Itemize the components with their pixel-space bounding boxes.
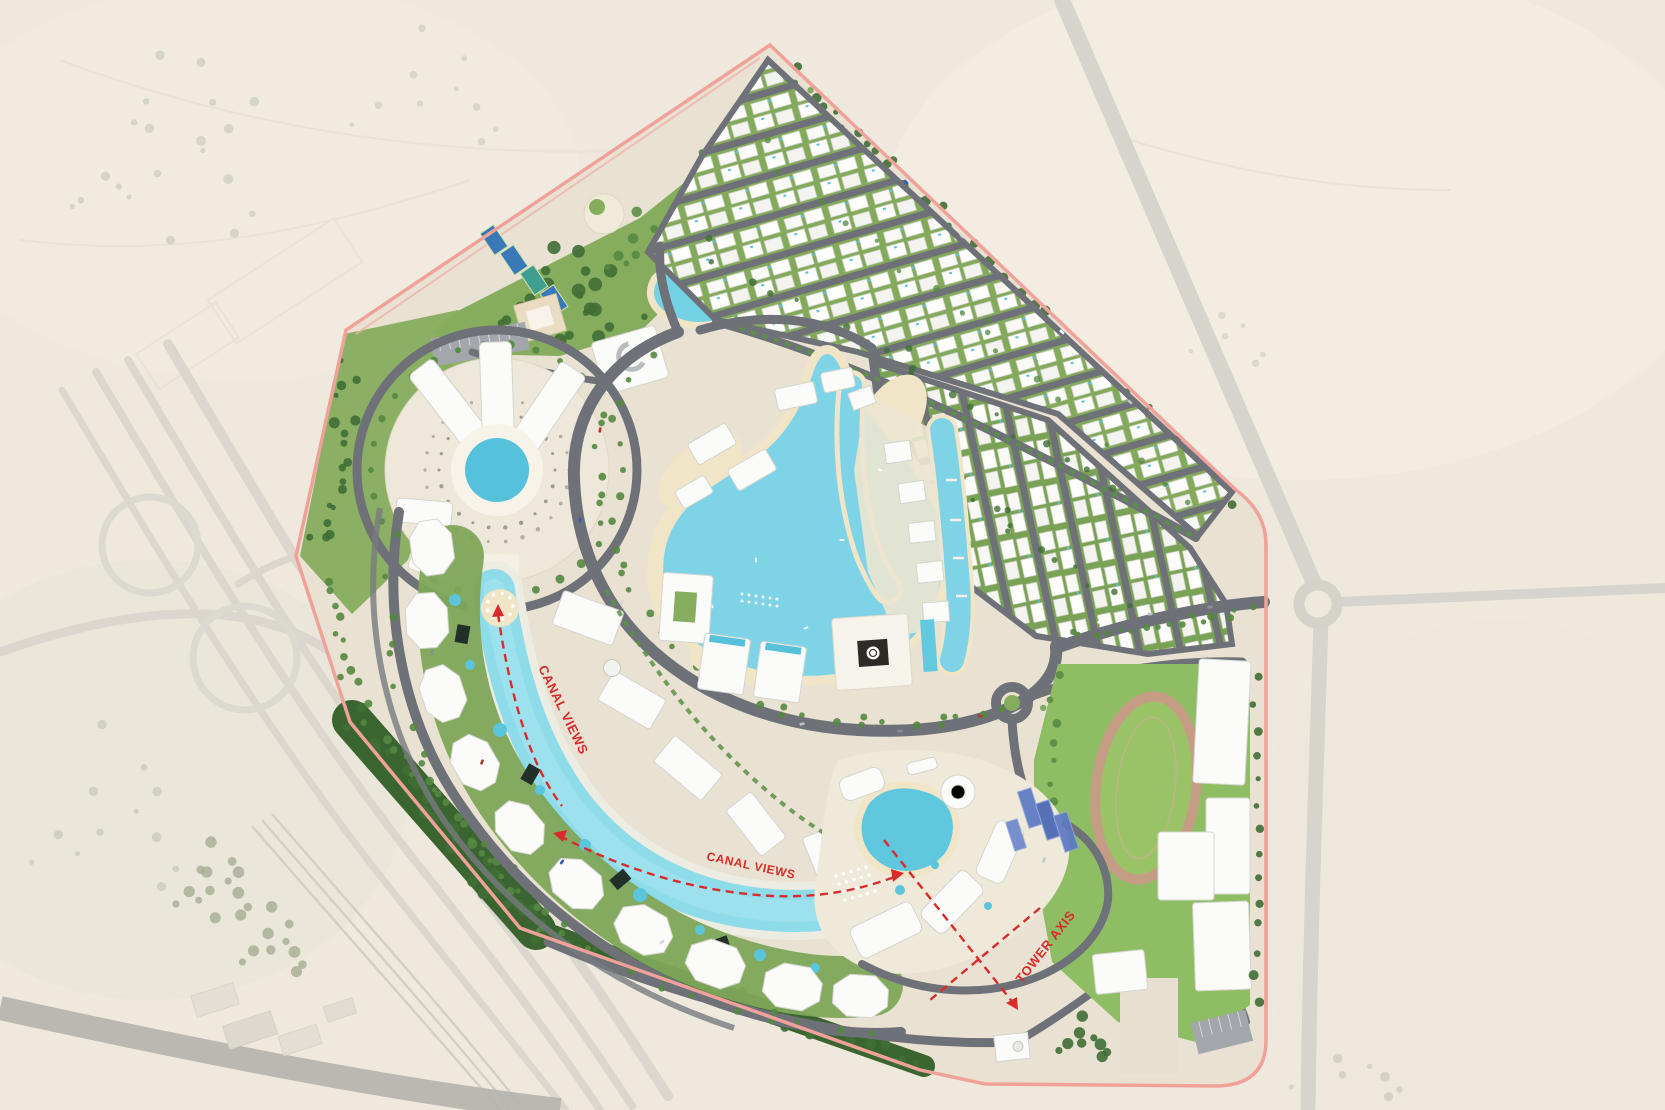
parasol-dot — [500, 617, 504, 621]
tree-dot — [426, 777, 434, 785]
tree-dot — [1050, 739, 1058, 747]
parasol-dot — [511, 604, 514, 607]
tree-dot — [481, 841, 488, 848]
tree-dot — [532, 586, 540, 594]
tree-dot — [938, 722, 945, 729]
tree-dot — [383, 735, 392, 744]
tree-dot — [1255, 673, 1263, 681]
tree-dot — [749, 278, 757, 286]
tree-dot — [306, 534, 313, 541]
parasol-dot — [508, 596, 512, 600]
tree-dot — [616, 492, 624, 500]
tree-dot — [547, 241, 560, 254]
tree-dot — [442, 799, 449, 806]
tree-dot — [323, 519, 331, 527]
tree-dot — [626, 587, 632, 593]
tree-dot — [336, 613, 344, 621]
tree-dot — [390, 613, 398, 621]
tree-dot — [502, 315, 512, 325]
tree-dot — [605, 322, 615, 332]
tree-dot — [1047, 782, 1053, 788]
tree-dot — [1166, 621, 1172, 627]
tree-dot — [1254, 803, 1260, 809]
car — [897, 730, 902, 733]
tree-dot — [708, 259, 714, 265]
parasol-dot — [858, 894, 862, 898]
lounger-dot — [755, 602, 758, 605]
tree-dot — [332, 603, 339, 610]
parasol-dot — [857, 868, 861, 872]
tree-dot — [1056, 671, 1064, 679]
parasol-dot — [834, 874, 838, 878]
tree-dot — [327, 503, 333, 509]
lounger-dot — [776, 598, 779, 601]
tree-dot — [572, 284, 586, 298]
parasol-dot — [873, 889, 877, 893]
tree-dot — [325, 530, 335, 540]
tree-dot — [613, 251, 623, 261]
tree-dot — [1190, 613, 1196, 619]
tree-dot — [1084, 466, 1090, 472]
lounger-dot — [755, 595, 758, 598]
tree-dot — [1047, 697, 1054, 704]
lounger-dot — [748, 601, 751, 604]
tree-dot — [592, 947, 597, 952]
crescent-plaza-green — [589, 199, 605, 215]
tree-dot — [460, 820, 468, 828]
tree-dot — [1144, 624, 1151, 631]
tree-dot — [1232, 609, 1236, 613]
tree-dot — [340, 653, 348, 661]
tree-dot — [1138, 457, 1145, 464]
parasol-dot — [855, 886, 859, 890]
plaza-dot — [471, 521, 474, 524]
tree-dot — [1185, 500, 1191, 506]
tree-dot — [688, 993, 694, 999]
tree-dot — [1062, 1038, 1073, 1049]
tree-dot — [626, 377, 632, 383]
plaza-dot — [565, 451, 568, 454]
tree-dot — [598, 492, 605, 499]
tree-dot — [1077, 1010, 1088, 1021]
tree-dot — [869, 1030, 876, 1037]
tree-dot — [1038, 546, 1045, 553]
plaza-dot — [457, 512, 461, 516]
plaza-dot — [423, 468, 426, 471]
plaza-dot — [536, 527, 540, 531]
tree-dot — [612, 546, 620, 554]
tree-dot — [598, 473, 606, 481]
plaza-dot — [447, 437, 450, 440]
tree-dot — [953, 714, 959, 720]
tree-dot — [370, 493, 377, 500]
tree-dot — [632, 251, 640, 259]
tree-dot — [588, 278, 602, 292]
tree-dot — [1254, 919, 1261, 926]
tree-dot — [623, 261, 629, 267]
tree-dot — [1255, 874, 1262, 881]
tree-dot — [632, 207, 642, 217]
plaza-dot — [549, 516, 552, 519]
tree-dot — [985, 317, 991, 323]
plaza-dot — [440, 452, 443, 455]
tree-dot — [1094, 632, 1101, 639]
tree-dot — [913, 722, 921, 730]
tree-dot — [913, 1059, 920, 1066]
plaza-dot — [520, 535, 524, 539]
tree-dot — [1043, 440, 1050, 447]
tree-dot — [897, 269, 901, 273]
lounger-dot — [762, 596, 765, 599]
tree-dot — [616, 400, 624, 408]
parasol-dot — [486, 608, 490, 612]
tree-dot — [382, 574, 388, 580]
lounger-dot — [776, 605, 779, 608]
tree-dot — [879, 719, 885, 725]
tree-dot — [795, 298, 799, 302]
tree-dot — [884, 348, 890, 354]
plaza-dot — [503, 525, 507, 529]
utility-building — [994, 1032, 1031, 1061]
tree-dot — [778, 712, 785, 719]
car — [1207, 606, 1212, 609]
lounger-dot — [762, 603, 765, 606]
parasol-dot — [845, 880, 849, 884]
plaza-dot — [565, 485, 569, 489]
tree-dot — [1077, 1038, 1086, 1047]
plaza-dot — [438, 469, 441, 472]
plaza-dot — [533, 512, 536, 515]
tree-dot — [833, 718, 841, 726]
tree-dot — [1156, 625, 1161, 630]
tree-dot — [596, 500, 603, 507]
tree-dot — [1254, 727, 1263, 736]
tree-dot — [337, 674, 344, 681]
tree-dot — [541, 266, 550, 275]
plaza-dot — [551, 484, 555, 488]
masterplan-aerial-view: CANAL VIEWS CANAL VIEWS TOWER AXIS — [0, 0, 1665, 1110]
lounger-dot — [741, 600, 744, 603]
tree-dot — [1249, 970, 1259, 980]
tree-dot — [1256, 900, 1264, 908]
tree-dot — [1127, 603, 1132, 608]
tree-dot — [488, 858, 493, 863]
tree-dot — [1051, 758, 1056, 763]
tree-dot — [993, 348, 998, 353]
tree-dot — [340, 440, 347, 447]
plaza-dot — [432, 435, 435, 438]
tree-dot — [368, 467, 374, 473]
tree-dot — [780, 704, 787, 711]
tree-dot — [1055, 1047, 1062, 1054]
tree-dot — [341, 637, 346, 642]
tree-dot — [1103, 1048, 1112, 1057]
tree-dot — [1250, 701, 1257, 708]
tree-dot — [1201, 619, 1206, 624]
tree-dot — [596, 541, 602, 547]
plaza-dot — [551, 452, 554, 455]
tree-dot — [767, 290, 774, 297]
lounger-dot — [769, 604, 772, 607]
tree-dot — [467, 839, 477, 849]
parasol-dot — [501, 592, 504, 595]
tree-dot — [995, 412, 999, 416]
tree-dot — [392, 393, 398, 399]
tree-dot — [390, 746, 398, 754]
tree-dot — [378, 415, 385, 422]
tree-dot — [1011, 434, 1016, 439]
tree-dot — [333, 631, 339, 637]
lounger-dot — [769, 597, 772, 600]
tree-dot — [1053, 719, 1062, 728]
tree-dot — [598, 520, 604, 526]
tree-dot — [1085, 414, 1089, 418]
tree-dot — [354, 678, 362, 686]
tree-dot — [532, 347, 539, 354]
tree-dot — [1005, 528, 1010, 533]
helipad — [604, 660, 621, 677]
tree-dot — [705, 235, 712, 242]
tree-dot — [592, 444, 598, 450]
tree-dot — [347, 666, 356, 675]
tree-dot — [620, 562, 627, 569]
tree-dot — [1109, 485, 1116, 492]
round-pavilion-core — [951, 785, 965, 799]
tree-dot — [669, 644, 675, 650]
tree-dot — [340, 478, 347, 485]
tree-dot — [618, 570, 625, 577]
plaza-dot — [559, 435, 563, 439]
tree-dot — [565, 331, 574, 340]
tree-dot — [1040, 705, 1046, 711]
tree-dot — [479, 850, 486, 857]
boat — [840, 539, 845, 541]
parasol-dot — [849, 870, 853, 874]
tree-dot — [775, 170, 780, 175]
plaza-dot — [519, 521, 523, 525]
tree-dot — [1007, 523, 1012, 528]
tree-dot — [971, 498, 975, 502]
tree-dot — [985, 330, 991, 336]
tree-dot — [1228, 500, 1237, 509]
tree-dot — [559, 930, 566, 937]
parasol-dot — [860, 876, 864, 880]
tree-dot — [1128, 629, 1132, 633]
tree-dot — [419, 760, 426, 767]
crescent-plaza — [584, 194, 624, 234]
tree-dot — [325, 578, 333, 586]
parasol-dot — [843, 898, 847, 902]
roundabout-green — [1004, 695, 1020, 711]
tree-dot — [371, 441, 377, 447]
tree-dot — [994, 506, 1001, 513]
tree-dot — [600, 412, 607, 419]
tree-dot — [1073, 564, 1077, 568]
tree-dot — [572, 245, 585, 258]
tree-dot — [352, 376, 360, 384]
tree-dot — [1162, 482, 1167, 487]
tree-dot — [1255, 998, 1264, 1007]
tree-dot — [1256, 851, 1263, 858]
tree-dot — [940, 714, 947, 721]
car — [578, 517, 581, 522]
plaza-dot — [487, 540, 490, 543]
tree-dot — [756, 701, 764, 709]
parasol-dot — [866, 892, 870, 896]
tree-dot — [1104, 443, 1108, 447]
tree-dot — [1119, 628, 1123, 632]
tree-dot — [1111, 589, 1118, 596]
tree-dot — [1254, 950, 1261, 957]
tree-dot — [858, 722, 865, 729]
tree-dot — [341, 430, 349, 438]
parasol-dot — [486, 600, 490, 604]
lagoon-southwest-condo — [659, 572, 714, 643]
tree-dot — [387, 650, 394, 657]
tree-dot — [364, 700, 372, 708]
lagoon-resort-block — [832, 613, 913, 690]
tree-dot — [795, 1019, 801, 1025]
tree-dot — [1075, 632, 1080, 637]
parasol-dot — [867, 873, 871, 877]
tree-dot — [641, 314, 648, 321]
tree-dot — [556, 575, 565, 584]
tree-dot — [799, 712, 805, 718]
tree-dot — [734, 1007, 742, 1015]
tree-dot — [875, 239, 879, 243]
tree-dot — [598, 420, 605, 427]
masterplan-svg: CANAL VIEWS CANAL VIEWS TOWER AXIS — [0, 0, 1665, 1110]
plaza-dot — [487, 526, 491, 530]
tree-dot — [659, 985, 666, 992]
tree-dot — [1095, 1038, 1107, 1050]
tree-dot — [337, 381, 346, 390]
tree-dot — [561, 921, 568, 928]
tree-dot — [455, 347, 461, 353]
tree-dot — [960, 311, 965, 316]
tree-dot — [866, 1039, 877, 1050]
school-plot — [1120, 978, 1178, 1074]
tree-dot — [837, 1026, 845, 1034]
tree-dot — [1227, 614, 1234, 621]
tree-dot — [949, 391, 957, 399]
tree-dot — [343, 458, 352, 467]
tree-dot — [467, 876, 478, 887]
tree-dot — [327, 587, 334, 594]
plaza-dot — [426, 486, 429, 489]
hotel-central-pool — [465, 438, 529, 502]
tree-dot — [1065, 457, 1071, 463]
tree-dot — [1256, 825, 1264, 833]
plaza-dot — [504, 540, 508, 544]
tree-dot — [390, 684, 396, 690]
tree-dot — [1074, 1027, 1085, 1038]
tree-dot — [819, 198, 826, 205]
tree-dot — [1085, 584, 1089, 588]
tree-dot — [650, 352, 657, 359]
tree-dot — [1104, 631, 1110, 637]
tree-dot — [771, 1009, 778, 1016]
tree-dot — [389, 641, 396, 648]
tree-dot — [646, 610, 654, 618]
parasol-dot — [508, 613, 512, 617]
plaza-dot — [559, 502, 563, 506]
tree-dot — [608, 517, 616, 525]
lounger-dot — [748, 594, 751, 597]
tree-dot — [361, 719, 368, 726]
parasol-dot — [851, 896, 855, 900]
tree-dot — [618, 441, 623, 446]
tree-dot — [628, 233, 638, 243]
tree-dot — [498, 874, 504, 880]
resort-lagoon-pool — [858, 785, 956, 875]
tree-dot — [334, 393, 339, 398]
lounger-dot — [741, 593, 744, 596]
plaza-dot — [521, 401, 524, 404]
tree-dot — [421, 751, 428, 758]
tree-dot — [584, 302, 596, 314]
tree-dot — [329, 417, 340, 428]
plaza-dot — [425, 451, 428, 454]
tree-dot — [1005, 507, 1011, 513]
tree-dot — [998, 706, 1005, 713]
tree-dot — [1207, 612, 1215, 620]
tree-dot — [1055, 397, 1061, 403]
tree-dot — [1052, 557, 1058, 563]
tree-dot — [515, 888, 520, 893]
car — [431, 649, 434, 654]
parasol-dot — [837, 882, 841, 886]
tree-dot — [410, 723, 418, 731]
plaza-dot — [470, 401, 473, 404]
tree-dot — [534, 903, 542, 911]
tree-dot — [860, 714, 867, 721]
tree-dot — [608, 415, 616, 423]
plaza-dot — [439, 484, 443, 488]
parasol-dot — [852, 878, 856, 882]
tree-dot — [967, 403, 974, 410]
tree-dot — [350, 415, 360, 425]
plaza-dot — [554, 469, 557, 472]
tree-dot — [1253, 752, 1261, 760]
tree-dot — [432, 787, 438, 793]
tree-dot — [1179, 621, 1185, 627]
tree-dot — [581, 266, 591, 276]
tree-dot — [765, 137, 771, 143]
tree-dot — [933, 285, 940, 292]
tree-dot — [1256, 776, 1261, 781]
parasol-dot — [864, 865, 868, 869]
tree-dot — [843, 220, 849, 226]
tree-dot — [604, 264, 610, 270]
tree-dot — [1250, 604, 1256, 610]
tree-dot — [338, 485, 347, 494]
car — [1147, 612, 1152, 615]
plaza-dot — [544, 500, 548, 504]
parasol-dot — [492, 593, 496, 597]
tree-dot — [1034, 376, 1041, 383]
tree-dot — [620, 467, 626, 473]
parasol-dot — [842, 872, 846, 876]
tree-dot — [905, 345, 912, 352]
tree-dot — [393, 531, 400, 538]
